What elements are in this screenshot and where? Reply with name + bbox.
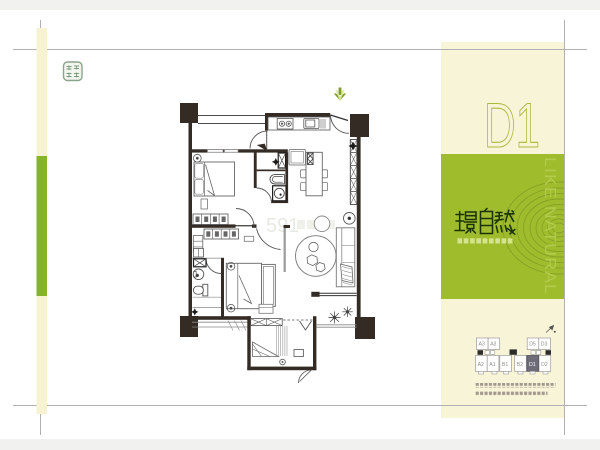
svg-text:D2: D2 xyxy=(541,362,548,368)
svg-text:A1: A1 xyxy=(489,362,495,368)
svg-text:LIKE NATURAL: LIKE NATURAL xyxy=(541,157,558,295)
svg-text:A3: A3 xyxy=(490,342,496,348)
svg-text:D3: D3 xyxy=(541,342,548,348)
svg-text:D1: D1 xyxy=(529,362,536,368)
svg-text:A2: A2 xyxy=(478,362,484,368)
svg-text:D5: D5 xyxy=(529,342,536,348)
svg-text:591: 591 xyxy=(266,215,299,237)
svg-text:B2: B2 xyxy=(517,362,523,368)
svg-text:A3: A3 xyxy=(479,342,485,348)
svg-text:D1: D1 xyxy=(484,91,540,161)
svg-text:B1: B1 xyxy=(502,362,508,368)
